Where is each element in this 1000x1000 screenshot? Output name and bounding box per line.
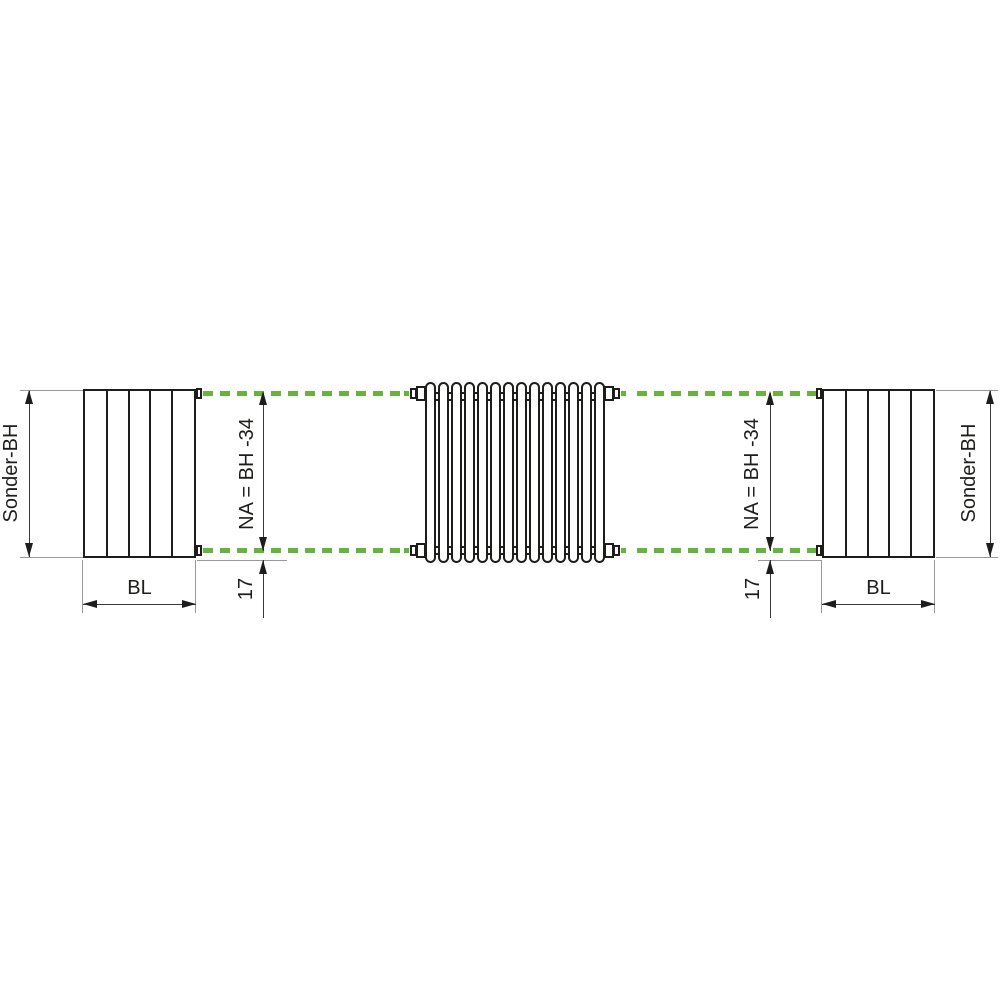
block-panel-line: [845, 391, 847, 556]
radiator-fitting-bottom-left-cap: [410, 545, 417, 556]
nipple-dot-bottom-left: [404, 548, 409, 553]
left-height-arrow-top: [25, 390, 33, 404]
left-height-label: Sonder-BH: [0, 373, 22, 573]
radiator-fitting-top-left-cap: [410, 388, 417, 399]
radiator-tube: [464, 382, 475, 563]
right-length-arrow-right: [921, 600, 935, 608]
radiator-tube: [529, 382, 540, 563]
radiator-tube: [503, 382, 514, 563]
right-hub-arrow-top: [766, 391, 774, 405]
radiator-tube: [516, 382, 527, 563]
left-height-extension-bottom: [20, 557, 83, 558]
radiator-tube: [568, 382, 579, 563]
left-hub-arrow-bottom: [259, 537, 267, 551]
block-panel-lines: [824, 391, 933, 556]
left-height-dimension-line: [29, 391, 30, 557]
block-panel-line: [910, 391, 912, 556]
block-panel-line: [171, 391, 173, 556]
left-offset-arrow: [259, 560, 267, 574]
radiator-fitting-top-left-inner: [416, 386, 426, 401]
radiator-tube: [581, 382, 592, 563]
block-panel-line: [106, 391, 108, 556]
right-block-top-connector: [816, 388, 822, 399]
right-offset-label: 17: [742, 539, 764, 639]
right-height-arrow-top: [986, 390, 994, 404]
block-panel-lines: [85, 391, 194, 556]
nipple-dot-top-right: [621, 391, 626, 396]
left-offset-label: 17: [235, 539, 257, 639]
axis-line-bottom-left: [203, 548, 400, 553]
left-hub-dimension-line: [263, 393, 264, 551]
block-panel-line: [867, 391, 869, 556]
left-length-arrow-right: [182, 600, 196, 608]
left-height-arrow-bottom: [25, 543, 33, 557]
radiator-tube: [594, 382, 605, 563]
left-length-arrow-left: [83, 600, 97, 608]
right-height-dimension-line: [990, 391, 991, 557]
right-block-bottom-connector: [816, 545, 822, 556]
right-offset-arrow: [766, 560, 774, 574]
radiator-fitting-bottom-left-inner: [416, 543, 426, 558]
nipple-dot-top-left: [404, 391, 409, 396]
right-length-label: BL: [832, 577, 925, 599]
nipple-dot-bottom-right: [621, 548, 626, 553]
right-length-arrow-left: [822, 600, 836, 608]
radiator-tube: [451, 382, 462, 563]
radiator-tube: [542, 382, 553, 563]
left-block-top-connector: [196, 388, 202, 399]
right-height-arrow-bottom: [986, 543, 994, 557]
block-panel-line: [888, 391, 890, 556]
radiator-tube: [438, 382, 449, 563]
left-hub-arrow-top: [259, 391, 267, 405]
radiator-fitting-bottom-right-cap: [613, 545, 620, 556]
radiator-tube: [490, 382, 501, 563]
radiator-tube: [425, 382, 436, 563]
right-length-dimension-line: [822, 604, 935, 605]
right-block: [822, 389, 935, 558]
radiator-dimension-diagram: Sonder-BH BL NA = BH -34 17 NA = BH -34 …: [0, 0, 1000, 1000]
block-panel-line: [128, 391, 130, 556]
radiator-fitting-top-right-cap: [613, 388, 620, 399]
left-block-bottom-connector: [196, 545, 202, 556]
left-length-dimension-line: [83, 604, 196, 605]
axis-line-bottom-right: [637, 548, 817, 553]
right-height-label: Sonder-BH: [958, 373, 980, 573]
right-hub-dimension-line: [770, 393, 771, 551]
axis-line-top-left: [203, 391, 400, 396]
radiator-tubes: [425, 382, 607, 563]
left-length-label: BL: [93, 577, 186, 599]
radiator-tube: [555, 382, 566, 563]
radiator-tube: [477, 382, 488, 563]
right-hub-arrow-bottom: [766, 537, 774, 551]
left-block: [83, 389, 196, 558]
axis-line-top-right: [637, 391, 817, 396]
block-panel-line: [149, 391, 151, 556]
